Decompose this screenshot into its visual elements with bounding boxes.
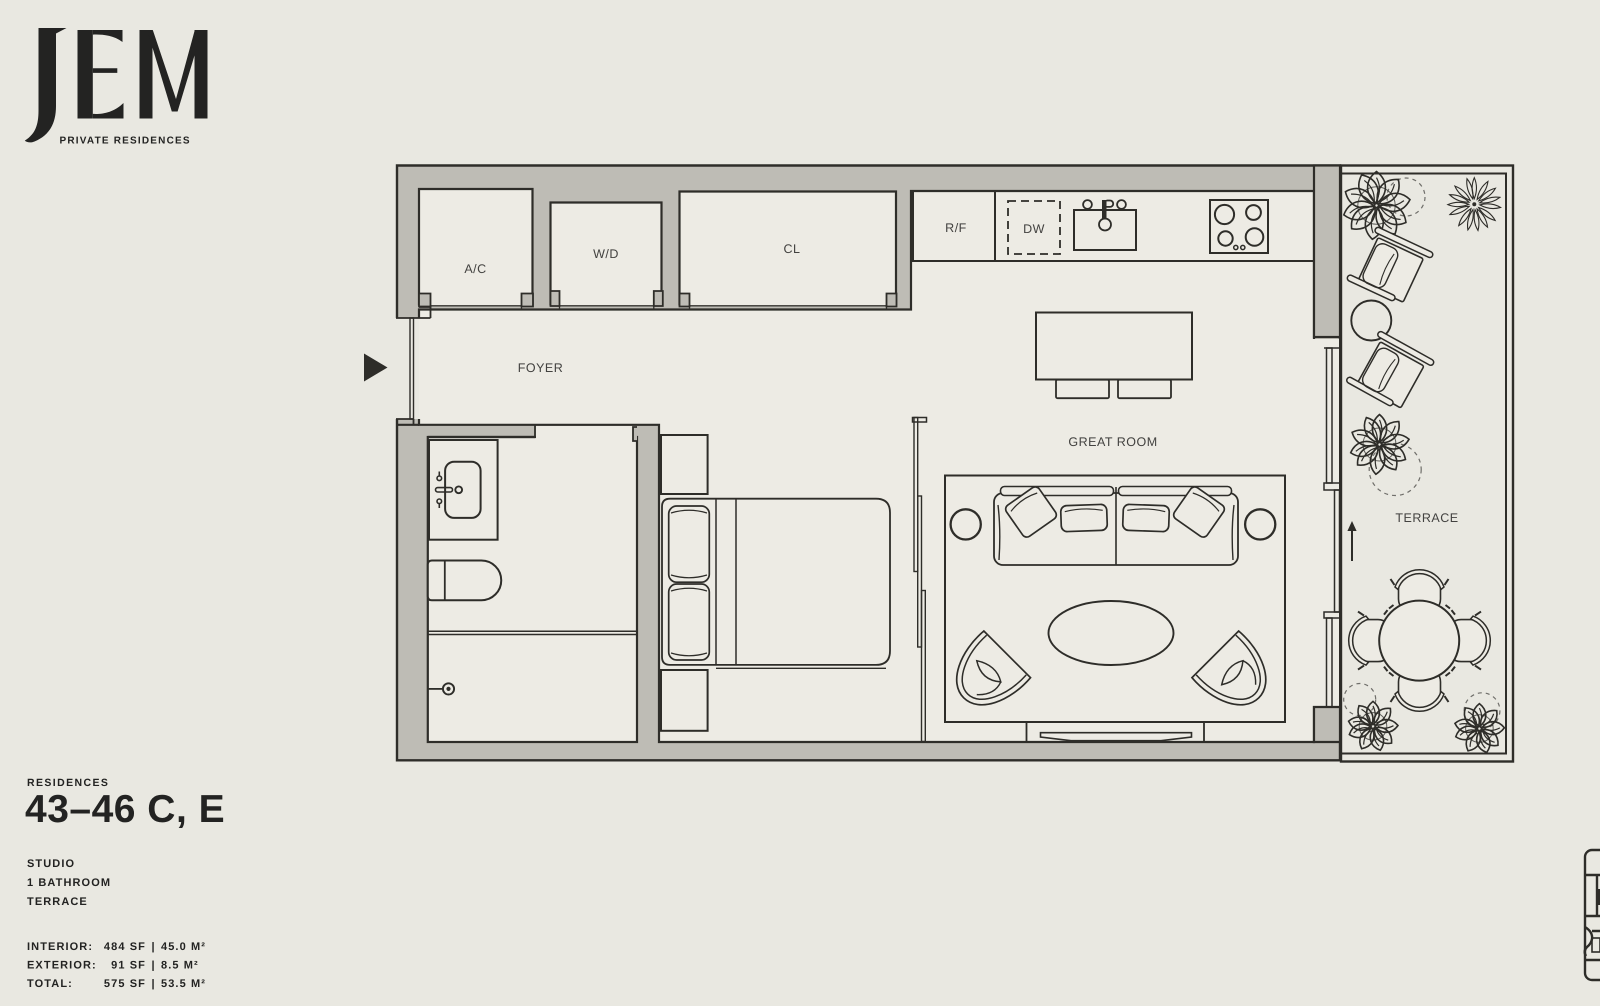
svg-text:TOTAL:: TOTAL: [27,978,73,990]
svg-text:EXTERIOR:: EXTERIOR: [27,960,97,972]
svg-text:CL: CL [784,242,801,256]
svg-text:53.5 M²: 53.5 M² [161,978,206,990]
svg-text:|: | [151,978,154,990]
svg-text:DW: DW [1023,222,1045,236]
svg-text:W/D: W/D [593,247,619,261]
svg-text:575 SF: 575 SF [104,978,146,990]
svg-text:A/C: A/C [464,262,486,276]
svg-text:TERRACE: TERRACE [27,896,88,908]
svg-text:GREAT ROOM: GREAT ROOM [1068,435,1157,449]
svg-text:484 SF: 484 SF [104,941,146,953]
svg-text:45.0 M²: 45.0 M² [161,941,206,953]
svg-text:R/F: R/F [945,221,967,235]
svg-text:8.5 M²: 8.5 M² [161,960,199,972]
svg-text:FOYER: FOYER [518,361,564,375]
svg-text:STUDIO: STUDIO [27,858,75,870]
svg-text:1 BATHROOM: 1 BATHROOM [27,877,111,889]
svg-text:INTERIOR:: INTERIOR: [27,941,93,953]
svg-text:91 SF: 91 SF [111,960,146,972]
svg-text:|: | [151,941,154,953]
svg-text:|: | [151,960,154,972]
svg-text:PRIVATE RESIDENCES: PRIVATE RESIDENCES [60,136,191,147]
svg-text:TERRACE: TERRACE [1395,511,1458,525]
svg-text:43–46 C, E: 43–46 C, E [25,788,225,831]
